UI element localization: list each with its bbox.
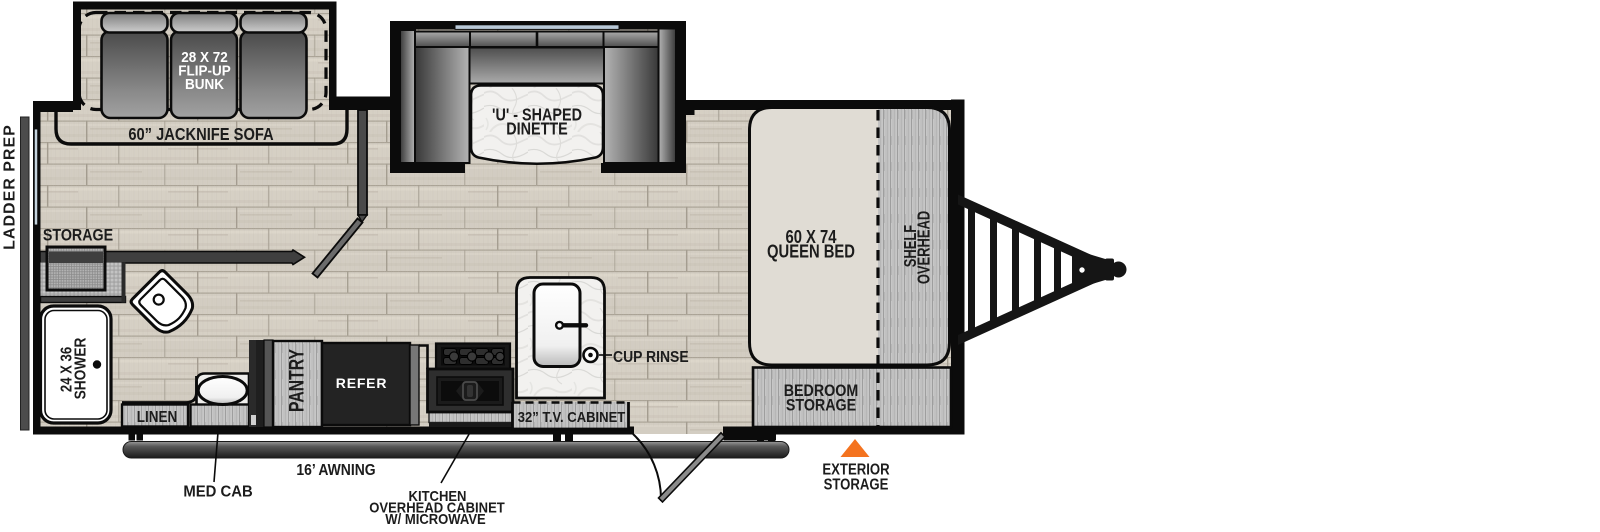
svg-text:STORAGE: STORAGE: [824, 476, 889, 493]
svg-text:REFER: REFER: [336, 375, 387, 391]
svg-text:LADDER PREP: LADDER PREP: [2, 124, 19, 250]
svg-text:MED CAB: MED CAB: [183, 483, 252, 501]
svg-text:STORAGE: STORAGE: [43, 226, 113, 244]
svg-text:16’ AWNING: 16’ AWNING: [296, 462, 375, 479]
svg-text:SHELF: SHELF: [901, 225, 920, 267]
svg-text:32” T.V. CABINET: 32” T.V. CABINET: [518, 408, 626, 425]
svg-text:PANTRY: PANTRY: [284, 348, 308, 411]
svg-text:SHOWER: SHOWER: [71, 337, 89, 399]
svg-text:W/ MICROWAVE: W/ MICROWAVE: [385, 511, 485, 527]
svg-text:CUP RINSE: CUP RINSE: [613, 349, 689, 366]
svg-text:STORAGE: STORAGE: [786, 396, 856, 414]
svg-text:QUEEN BED: QUEEN BED: [767, 241, 855, 262]
svg-text:DINETTE: DINETTE: [506, 119, 568, 139]
svg-text:LINEN: LINEN: [137, 409, 177, 426]
svg-text:60” JACKNIFE SOFA: 60” JACKNIFE SOFA: [128, 125, 274, 144]
svg-text:BUNK: BUNK: [185, 76, 225, 93]
